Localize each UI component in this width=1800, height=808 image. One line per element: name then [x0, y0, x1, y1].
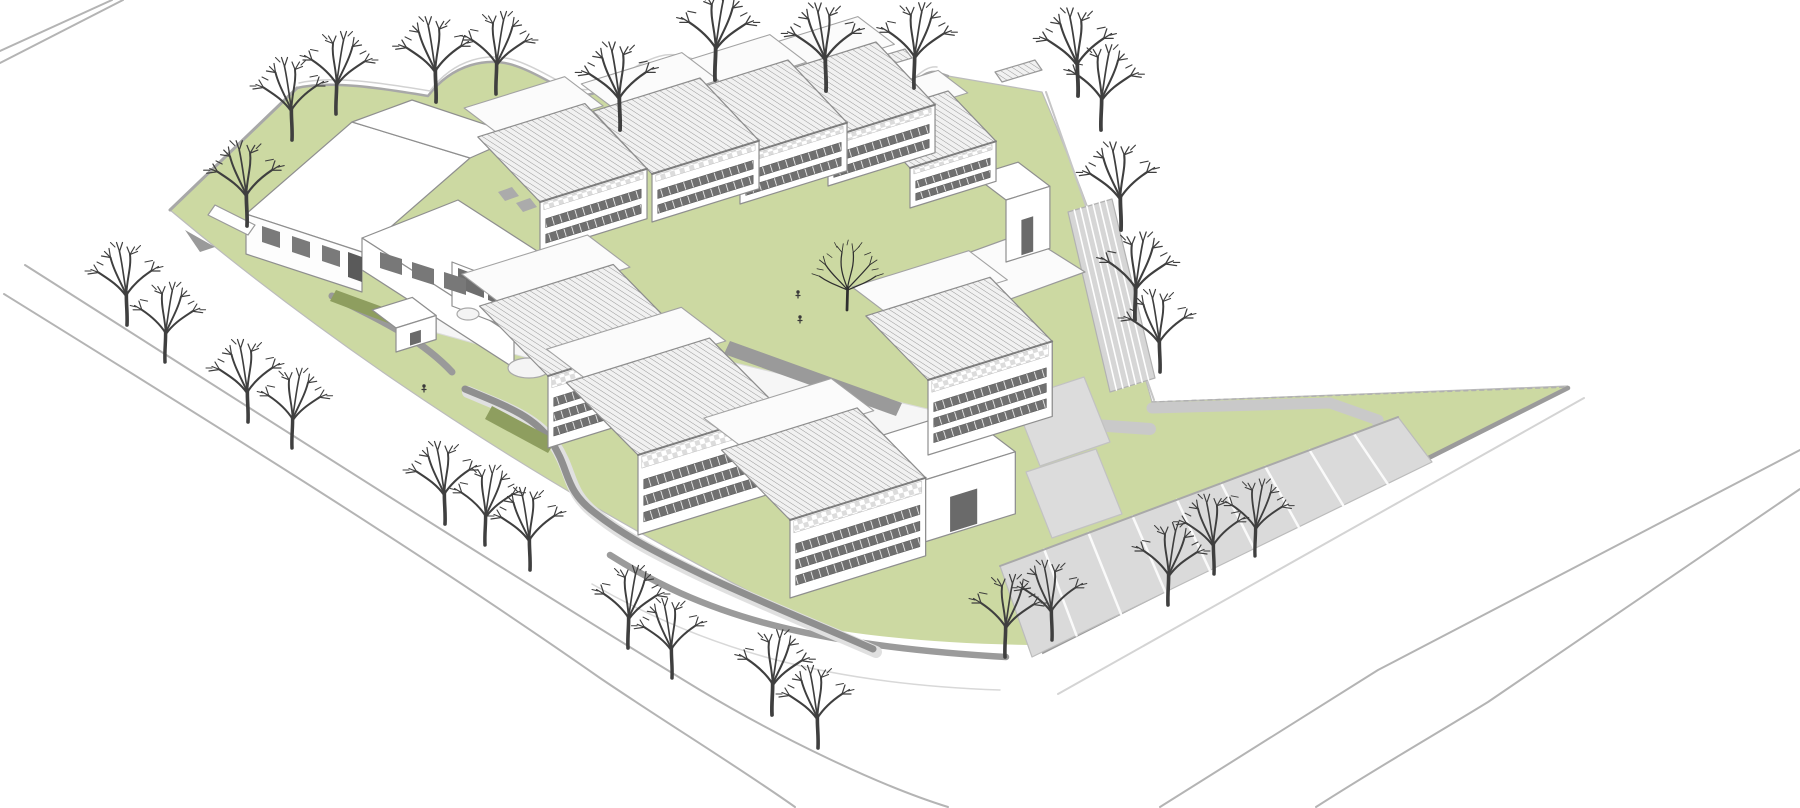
winter-tree — [488, 488, 566, 571]
site-axonometric-rendering: Axonometric architectural site rendering… — [0, 0, 1800, 808]
admin-door — [348, 252, 362, 282]
winter-tree — [206, 340, 284, 423]
road-southeast-outer — [1316, 489, 1800, 807]
architectural-rendering-stage: Axonometric architectural site rendering… — [0, 0, 1800, 808]
winter-tree — [776, 666, 854, 749]
winter-tree — [130, 282, 205, 362]
road-corner-top-left-inner — [0, 0, 112, 51]
wall-roof-vent — [995, 60, 1042, 82]
round-planter-small — [457, 308, 479, 320]
winter-tree — [85, 243, 163, 326]
road-corner-top-left-outer — [0, 0, 123, 63]
